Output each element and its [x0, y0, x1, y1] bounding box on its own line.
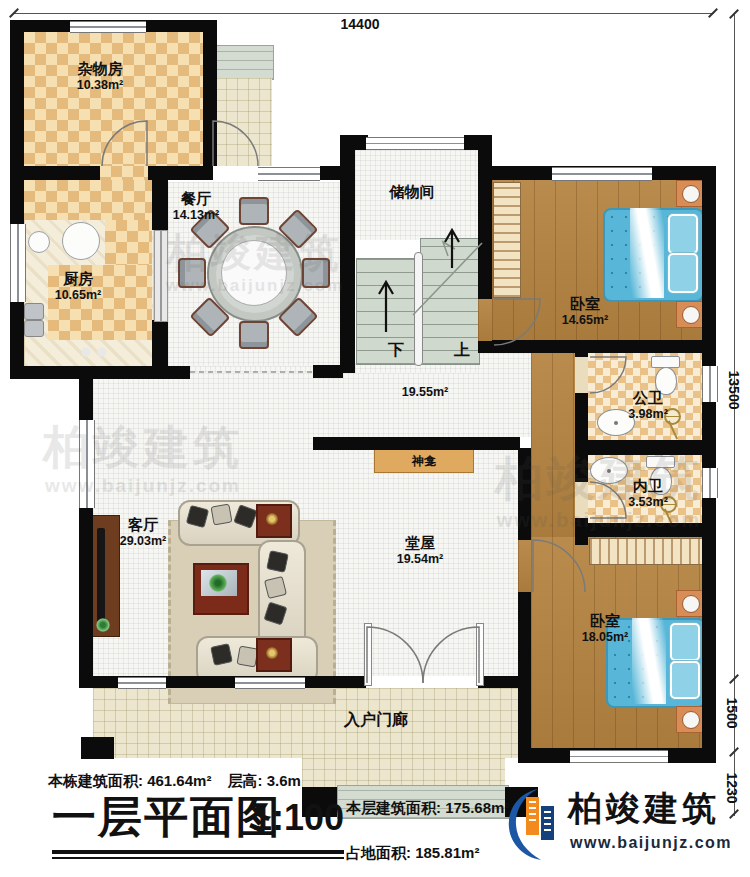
door-opening — [100, 166, 148, 180]
room-label-porch: 入户门廊 — [306, 711, 446, 730]
nightstand — [676, 706, 705, 733]
wall — [575, 440, 716, 455]
window — [702, 366, 718, 402]
shrine-shelf: 神龛 — [374, 449, 474, 473]
window — [702, 468, 718, 498]
wall — [478, 137, 492, 299]
sliding-door — [154, 230, 168, 322]
shrine-label: 神龛 — [412, 454, 436, 468]
dim-label-right: 13500 — [728, 367, 742, 413]
stair-label-down: 下 — [382, 341, 410, 360]
plant-icon — [209, 574, 227, 592]
company-logo-icon — [502, 783, 564, 863]
dim-label-top: 14400 — [320, 15, 400, 34]
page-title: 一层平面图 — [52, 788, 282, 847]
room-label-ensuite-bath: 内卫3.53m² — [598, 477, 698, 509]
room-label-utility: 杂物房10.38m² — [50, 60, 150, 92]
door-opening — [366, 676, 478, 688]
window — [118, 677, 166, 689]
room-label-hall: 堂屋19.54m² — [370, 534, 470, 566]
room-label-kitchen: 厨房10.65m² — [28, 270, 128, 302]
bed-pillow — [670, 623, 700, 661]
stair-label-up: 上 — [448, 341, 476, 360]
dining-chair — [178, 258, 206, 288]
title-underline — [52, 850, 344, 854]
dining-chair — [302, 258, 330, 288]
window — [235, 677, 305, 689]
wall — [203, 166, 213, 180]
floor-utility-room — [24, 32, 203, 166]
wardrobe — [589, 538, 704, 565]
bed-sheet — [630, 208, 664, 298]
wall — [518, 448, 531, 540]
window — [570, 750, 668, 763]
wall — [148, 166, 203, 180]
wall — [10, 20, 24, 378]
window — [10, 224, 26, 302]
nightstand — [676, 180, 705, 207]
wall — [575, 523, 716, 537]
room-label-bedroom2: 卧室18.05m² — [550, 612, 660, 644]
kitchen-rack2 — [24, 320, 44, 337]
door-leaf — [364, 623, 372, 686]
window — [79, 420, 95, 508]
window — [552, 167, 652, 181]
wall — [203, 20, 217, 180]
stair-rail — [414, 252, 423, 366]
wall — [10, 366, 190, 379]
side-landing — [215, 78, 272, 166]
wall — [79, 366, 93, 688]
room-label-bedroom1: 卧室14.65m² — [535, 295, 635, 327]
nightstand — [676, 590, 705, 617]
stairhall-area-label: 19.55m² — [375, 385, 475, 400]
wall — [575, 393, 588, 482]
wall — [313, 437, 520, 450]
window — [258, 167, 320, 181]
dining-table-top — [221, 240, 287, 306]
sofa-pillow — [210, 643, 233, 666]
wall — [478, 340, 716, 353]
wall — [702, 166, 716, 763]
dim-line-top — [13, 13, 714, 14]
door-opening — [213, 166, 258, 180]
wall — [152, 320, 168, 366]
room-label-storeroom: 储物间 — [362, 183, 462, 201]
sofa-pillow — [210, 503, 232, 525]
floor-kitchen-mid — [105, 220, 152, 265]
door-leaf — [476, 623, 484, 686]
dim-label-1230: 1230 — [726, 769, 740, 807]
room-label-public-bath: 公卫3.98m² — [598, 389, 698, 421]
room-label-dining: 餐厅14.13m² — [146, 190, 246, 222]
floor-plan: 神龛 — [0, 0, 750, 877]
total-area-text: 本栋建筑面积: 461.64m² — [48, 772, 211, 789]
floor-corridor — [531, 353, 575, 537]
dining-chair — [239, 321, 269, 349]
side-steps — [215, 45, 274, 80]
side-table-ornament-icon — [266, 647, 278, 659]
bed-pillow — [668, 214, 698, 254]
wall — [340, 135, 355, 373]
scale-text: 1:100 — [252, 797, 344, 839]
door-opening — [518, 540, 531, 592]
dim-label-1500: 1500 — [726, 694, 740, 732]
kitchen-sink-small — [28, 231, 50, 253]
footprint-text: 占地面积: 185.81m² — [346, 844, 479, 863]
room-label-living: 客厅29.03m² — [93, 516, 193, 548]
door-opening — [575, 357, 588, 393]
floor-kitchen-top — [24, 180, 152, 220]
company-logo-url: www.baijunjz.com — [570, 834, 732, 852]
bed-pillow — [670, 661, 700, 699]
window — [70, 21, 146, 33]
floor-height-text: 层高: 3.6m — [228, 772, 301, 789]
nightstand — [676, 301, 705, 328]
stove-icon — [77, 339, 111, 365]
wall — [340, 135, 368, 150]
porch-column — [81, 737, 114, 759]
door-opening — [575, 482, 588, 518]
sofa-pillow — [266, 550, 289, 573]
door-opening — [478, 299, 492, 341]
kitchen-rack — [24, 303, 44, 320]
wall — [518, 590, 531, 748]
window — [366, 137, 464, 150]
company-logo-name: 柏竣建筑 — [568, 786, 720, 832]
floor-area-text: 本层建筑面积: 175.68m² — [346, 799, 509, 818]
wall — [313, 365, 343, 378]
kitchen-sink-large — [62, 222, 100, 260]
wardrobe — [493, 182, 521, 298]
title-underline2 — [52, 857, 344, 859]
side-table-ornament-icon — [266, 513, 278, 525]
wall — [10, 166, 100, 180]
bed-pillow — [668, 253, 698, 293]
plant-icon — [96, 618, 110, 632]
